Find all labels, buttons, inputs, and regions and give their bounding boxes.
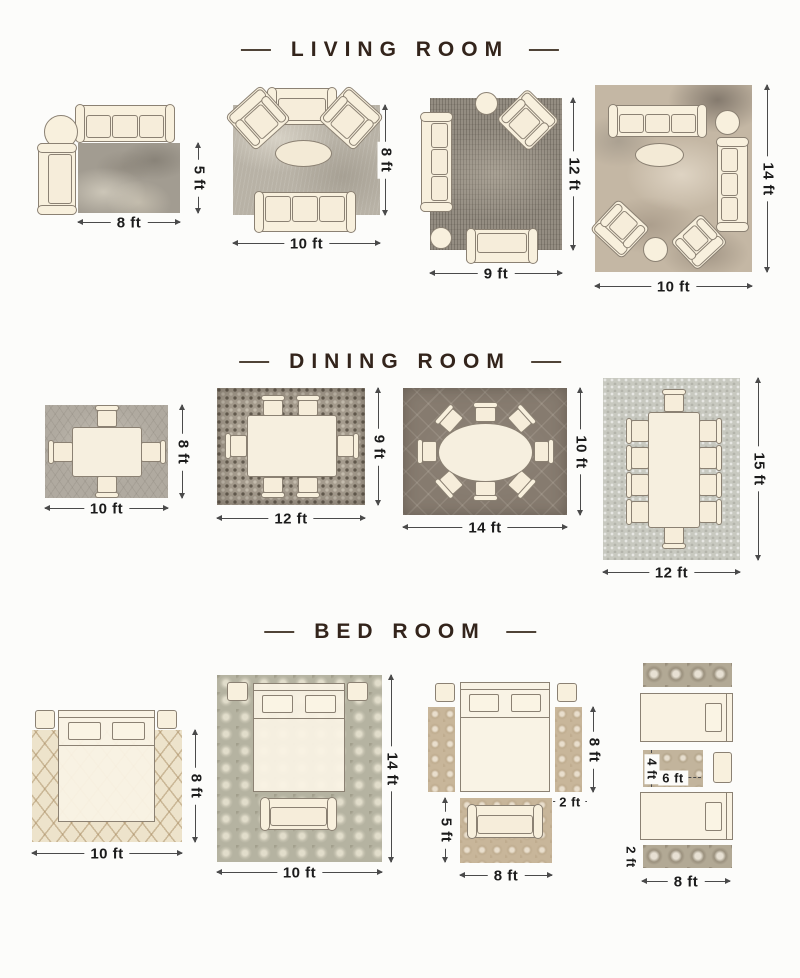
seat-row: [270, 807, 327, 826]
layout-dining-12x9: 9 ft 12 ft: [205, 385, 400, 530]
chair-seat: [141, 442, 161, 462]
height-dimension-label: 8 ft: [175, 433, 192, 470]
chair-back: [716, 499, 722, 525]
pillow: [705, 802, 722, 831]
seat-row: [477, 233, 527, 253]
height-dimension-label: 12 ft: [566, 151, 583, 196]
chair-back: [48, 440, 54, 464]
dining-chair: [631, 501, 649, 523]
chair-back: [626, 499, 632, 525]
dining-chair: [631, 420, 649, 442]
width-dimension: 10 ft: [45, 508, 168, 509]
nightstand: [157, 710, 177, 729]
pillow: [68, 722, 101, 740]
dining-chair: [699, 501, 717, 523]
layout-dining-10x8: 8 ft 10 ft: [30, 395, 230, 520]
pillow: [469, 694, 499, 712]
section-header-living-room: LIVING ROOM: [241, 38, 559, 62]
accent-rug-height-label: 4 ft: [645, 754, 660, 784]
chair-seat: [699, 501, 717, 523]
header-dash-right: [529, 49, 559, 51]
sofa-arm: [37, 205, 77, 215]
bed: [253, 683, 345, 792]
chair-back: [662, 389, 686, 395]
runner-width-label: 2 ft: [555, 795, 585, 810]
seat-cushion: [112, 115, 137, 138]
dining-chair: [263, 477, 283, 493]
header-dash-left: [239, 361, 269, 363]
chair-seat: [699, 474, 717, 496]
width-dimension: 12 ft: [603, 572, 740, 573]
width-dimension: 9 ft: [430, 273, 562, 274]
height-dimension: 15 ft: [758, 378, 759, 560]
coffee-table: [635, 143, 684, 167]
runner-height-label: 2 ft: [624, 842, 639, 872]
runner-rug: [643, 845, 732, 868]
seat-cushion: [431, 123, 448, 148]
width-dimension-label: 8 ft: [668, 874, 705, 891]
header-dash-left: [241, 49, 271, 51]
section-header-bed-room: BED ROOM: [264, 620, 536, 644]
runner-rug: [643, 663, 732, 687]
dining-chair: [699, 447, 717, 469]
dining-chair: [699, 420, 717, 442]
dining-table: [247, 415, 337, 477]
sofa: [421, 112, 452, 212]
seat-row: [721, 148, 738, 221]
seat-cushion: [721, 148, 738, 172]
dining-table: [72, 427, 142, 477]
twin-bed: [640, 792, 733, 840]
sofa: [75, 105, 175, 142]
width-dimension: 10 ft: [32, 853, 182, 854]
chair-seat: [664, 394, 684, 412]
loveseat: [466, 229, 538, 263]
dining-chair: [298, 477, 318, 493]
sofa-arm: [254, 191, 264, 233]
runner-length-label: 8 ft: [586, 731, 603, 768]
chair-seat: [298, 400, 318, 416]
sofa: [254, 192, 356, 232]
seat-cushion: [270, 807, 327, 826]
nightstand: [713, 752, 732, 783]
side-table: [475, 92, 498, 115]
height-dimension: 8 ft: [182, 405, 183, 498]
chair-seat: [97, 410, 117, 427]
seat-cushion: [477, 233, 527, 253]
height-dimension-label: 14 ft: [760, 156, 777, 201]
width-dimension: 12 ft: [217, 518, 365, 519]
accent-rug-height-dimension: 4 ft: [651, 750, 652, 787]
bench-arm: [467, 804, 477, 839]
dining-chair: [534, 441, 549, 462]
seat-row: [619, 114, 696, 133]
bench: [467, 805, 543, 838]
chair-seat: [664, 526, 684, 544]
runner-height-dimension: 2 ft: [630, 845, 631, 868]
side-table: [430, 227, 452, 249]
height-dimension: 12 ft: [573, 98, 574, 250]
headboard: [59, 711, 154, 718]
width-dimension-label: 14 ft: [462, 520, 507, 537]
sofa-arm: [716, 222, 749, 232]
sofa-arm: [528, 228, 538, 264]
headboard: [254, 684, 344, 691]
chair-seat: [631, 420, 649, 442]
pillow-zone: [254, 691, 344, 719]
pillow: [262, 695, 293, 713]
header-dash-right: [506, 631, 536, 633]
layout-dining-12x15: 15 ft 12 ft: [595, 370, 780, 585]
chair-back: [473, 495, 498, 501]
seat-cushion: [48, 154, 72, 204]
pillow-zone: [461, 690, 549, 718]
height-dimension: 10 ft: [580, 388, 581, 515]
dining-chair: [475, 481, 496, 496]
area-rug: [78, 143, 180, 213]
chair-back: [95, 492, 119, 498]
dining-chair: [699, 474, 717, 496]
chair-seat: [53, 442, 73, 462]
dining-chair: [631, 447, 649, 469]
width-dimension-label: 10 ft: [84, 501, 129, 518]
width-dimension: 10 ft: [595, 286, 752, 287]
dining-chair: [141, 442, 161, 462]
chair-back: [473, 402, 498, 408]
bench: [260, 798, 337, 830]
width-dimension: 8 ft: [78, 222, 180, 223]
dining-chair: [664, 394, 684, 412]
seat-cushion: [265, 196, 291, 222]
dining-chair: [53, 442, 73, 462]
width-dimension: 10 ft: [217, 872, 382, 873]
width-dimension-label: 8 ft: [488, 868, 525, 885]
width-dimension-label: 10 ft: [651, 279, 696, 296]
width-dimension: 14 ft: [403, 527, 567, 528]
bench-arm: [327, 797, 337, 831]
height-dimension-label: 8 ft: [188, 768, 205, 805]
chair-seat: [263, 400, 283, 416]
sofa: [608, 105, 707, 137]
chair-seat: [631, 501, 649, 523]
chair-seat: [422, 441, 437, 462]
pillow: [112, 722, 145, 740]
chair-back: [626, 472, 632, 498]
chair-back: [261, 395, 285, 401]
dining-chair: [475, 407, 496, 422]
runner-width-dimension: 2 ft: [553, 801, 587, 802]
sofa-arm: [608, 104, 618, 138]
height-dimension-label: 8 ft: [378, 142, 395, 179]
chair-seat: [263, 477, 283, 493]
coffee-table: [275, 140, 332, 167]
twin-bed: [640, 693, 733, 742]
width-dimension: 8 ft: [460, 875, 552, 876]
seat-row: [431, 123, 448, 201]
chair-back: [296, 492, 320, 498]
width-dimension-label: 12 ft: [649, 565, 694, 582]
nightstand: [435, 683, 455, 702]
chair-seat: [699, 420, 717, 442]
height-dimension: 14 ft: [391, 675, 392, 862]
dining-chair: [97, 410, 117, 427]
chair-seat: [534, 441, 549, 462]
seat-row: [477, 815, 533, 834]
pillow-zone: [59, 718, 154, 746]
loveseat: [38, 143, 76, 215]
header-dash-right: [531, 361, 561, 363]
chair-back: [353, 433, 359, 459]
chair-back: [626, 445, 632, 471]
chair-back: [548, 439, 554, 464]
chair-back: [626, 418, 632, 444]
seat-row: [265, 196, 345, 222]
height-dimension: 9 ft: [378, 388, 379, 505]
chair-seat: [298, 477, 318, 493]
layout-living-10x8: 8 ft 10 ft: [225, 85, 415, 265]
seat-row: [86, 115, 164, 138]
pillow: [305, 695, 336, 713]
height-dimension-label: 9 ft: [371, 428, 388, 465]
dining-chair: [422, 441, 437, 462]
chair-back: [95, 405, 119, 411]
chair-back: [716, 472, 722, 498]
layout-dining-14x10: 10 ft 14 ft: [395, 385, 595, 540]
dining-chair: [664, 526, 684, 544]
runner-rug: [555, 707, 582, 792]
accent-rug-width-label: 6 ft: [658, 771, 688, 786]
layout-living-10x14: 14 ft 10 ft: [585, 75, 800, 300]
seat-cushion: [86, 115, 111, 138]
dining-chair: [337, 435, 354, 457]
seat-cushion: [139, 115, 164, 138]
layout-bed-twin-runners: 4 ft 6 ft 2 ft 8 ft: [618, 655, 778, 895]
section-header-dining-room: DINING ROOM: [239, 350, 561, 374]
nightstand: [347, 682, 368, 701]
chair-seat: [475, 407, 496, 422]
seat-cushion: [431, 176, 448, 201]
sofa-arm: [420, 112, 453, 122]
chair-back: [225, 433, 231, 459]
section-title-bed-room: BED ROOM: [314, 620, 486, 644]
width-dimension-label: 10 ft: [277, 865, 322, 882]
width-dimension-label: 10 ft: [284, 236, 329, 253]
layout-bed-10x14: 14 ft 10 ft: [210, 670, 410, 885]
sofa-arm: [165, 104, 175, 143]
seat-cushion: [292, 196, 318, 222]
chair-seat: [230, 435, 247, 457]
width-dimension-label: 9 ft: [478, 266, 515, 283]
height-dimension-label: 5 ft: [191, 160, 208, 197]
height-dimension-label: 10 ft: [573, 429, 590, 474]
seat-cushion: [721, 197, 738, 221]
chair-back: [296, 395, 320, 401]
chair-back: [160, 440, 166, 464]
chair-back: [716, 445, 722, 471]
width-dimension-label: 8 ft: [111, 215, 148, 232]
pillow: [511, 694, 541, 712]
seat-row: [48, 154, 72, 204]
width-dimension: 8 ft: [642, 881, 730, 882]
runner-length-dimension: 8 ft: [593, 707, 594, 792]
dining-chair: [230, 435, 247, 457]
height-dimension-label: 15 ft: [751, 446, 768, 491]
seat-cushion: [721, 173, 738, 197]
bench-arm: [260, 797, 270, 831]
nightstand: [35, 710, 55, 729]
foot-rug-height-label: 5 ft: [438, 812, 455, 849]
header-dash-left: [264, 631, 294, 633]
bed: [460, 682, 550, 792]
rug-size-guide: LIVING ROOM 5 ft 8 ft: [0, 0, 800, 978]
chair-seat: [631, 474, 649, 496]
sofa-arm: [697, 104, 707, 138]
sofa-arm: [716, 137, 749, 147]
sofa-arm: [346, 191, 356, 233]
dining-table: [438, 423, 533, 482]
seat-cushion: [645, 114, 670, 133]
chair-seat: [631, 447, 649, 469]
sofa-arm: [37, 143, 77, 153]
seat-cushion: [619, 114, 644, 133]
headboard: [726, 694, 727, 741]
foot-rug-height-dimension: 5 ft: [445, 798, 446, 862]
layout-bed-runners-8x5: 8 ft 2 ft 5 ft 8 ft: [425, 675, 610, 890]
seat-cushion: [319, 196, 345, 222]
nightstand: [227, 682, 248, 701]
chair-back: [716, 418, 722, 444]
seat-cushion: [477, 815, 533, 834]
height-dimension: 5 ft: [198, 143, 199, 213]
dining-table: [648, 412, 700, 528]
layout-living-8x5: 5 ft 8 ft: [20, 88, 225, 248]
chair-back: [662, 543, 686, 549]
nightstand: [557, 683, 577, 702]
height-dimension: 8 ft: [385, 105, 386, 215]
height-dimension-label: 14 ft: [384, 746, 401, 791]
dining-chair: [263, 400, 283, 416]
headboard: [461, 683, 549, 690]
bench-arm: [533, 804, 543, 839]
seat-cushion: [431, 149, 448, 174]
dining-chair: [631, 474, 649, 496]
chair-seat: [337, 435, 354, 457]
sofa-arm: [420, 202, 453, 212]
chair-seat: [699, 447, 717, 469]
dining-chair: [97, 476, 117, 493]
chair-back: [261, 492, 285, 498]
chair-seat: [97, 476, 117, 493]
sofa-arm: [466, 228, 476, 264]
headboard: [726, 793, 727, 839]
width-dimension-label: 10 ft: [84, 846, 129, 863]
side-table: [643, 237, 668, 262]
chair-back: [417, 439, 423, 464]
chair-seat: [475, 481, 496, 496]
sofa: [717, 137, 748, 232]
section-title-living-room: LIVING ROOM: [291, 38, 509, 62]
bed: [58, 710, 155, 822]
seat-cushion: [671, 114, 696, 133]
width-dimension-label: 12 ft: [268, 511, 313, 528]
width-dimension: 10 ft: [233, 243, 380, 244]
height-dimension: 8 ft: [195, 730, 196, 842]
pillow: [705, 703, 722, 732]
dining-chair: [298, 400, 318, 416]
runner-rug: [428, 707, 455, 792]
layout-bed-10x8: 8 ft 10 ft: [25, 700, 225, 865]
side-table: [715, 110, 740, 135]
section-title-dining-room: DINING ROOM: [289, 350, 511, 374]
height-dimension: 14 ft: [767, 85, 768, 272]
